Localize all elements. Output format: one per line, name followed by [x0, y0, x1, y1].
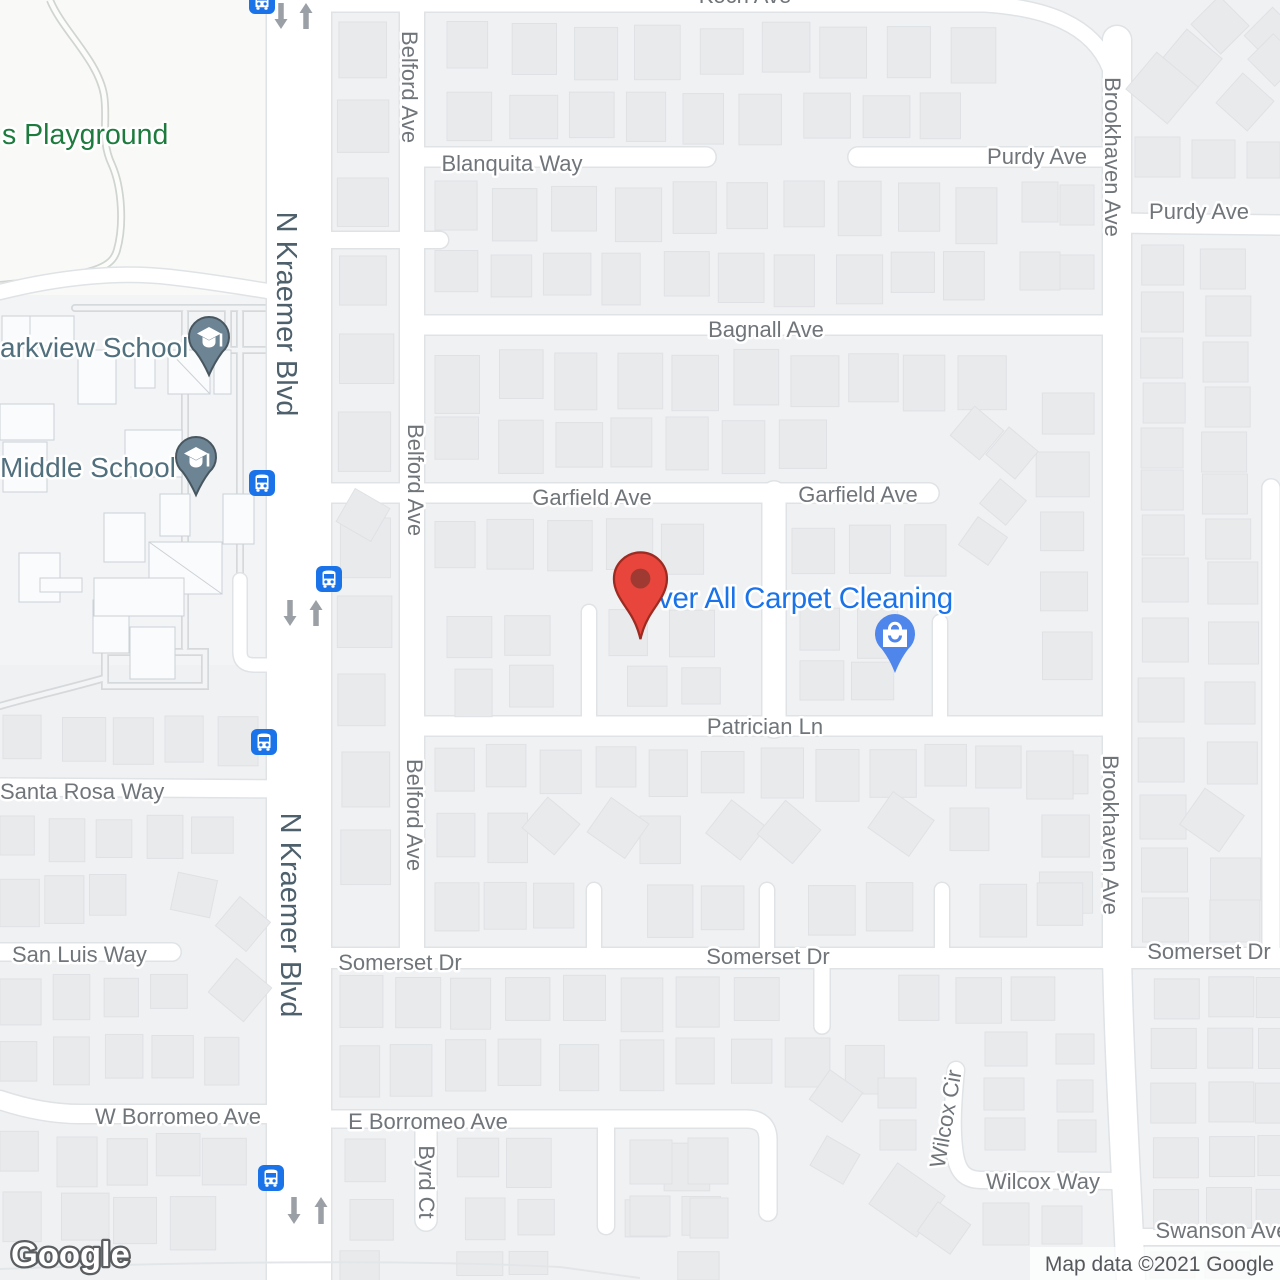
svg-text:Patrician Ln: Patrician Ln	[707, 714, 823, 739]
svg-text:ver All Carpet Cleaning: ver All Carpet Cleaning	[658, 582, 953, 615]
svg-text:Wilcox Way: Wilcox Way	[986, 1169, 1100, 1194]
svg-text:San Luis Way: San Luis Way	[12, 942, 147, 967]
svg-text:Koch Ave: Koch Ave	[699, 0, 792, 8]
svg-text:Byrd Ct: Byrd Ct	[414, 1145, 439, 1218]
svg-text:Somerset Dr: Somerset Dr	[1147, 939, 1270, 964]
svg-text:W Borromeo Ave: W Borromeo Ave	[95, 1104, 261, 1129]
svg-text:s Playground: s Playground	[2, 119, 168, 151]
svg-text:Brookhaven Ave: Brookhaven Ave	[1100, 77, 1125, 237]
svg-text:Google: Google	[11, 1236, 130, 1274]
svg-text:Brookhaven Ave: Brookhaven Ave	[1098, 755, 1123, 915]
svg-text:N Kraemer Blvd: N Kraemer Blvd	[274, 813, 306, 1018]
svg-text:N Kraemer Blvd: N Kraemer Blvd	[270, 212, 302, 417]
svg-text:Belford Ave: Belford Ave	[403, 424, 428, 536]
svg-text:Bagnall Ave: Bagnall Ave	[708, 317, 824, 342]
svg-text:E Borromeo Ave: E Borromeo Ave	[348, 1109, 508, 1134]
svg-text:Purdy Ave: Purdy Ave	[987, 144, 1087, 169]
svg-text:Swanson Ave: Swanson Ave	[1156, 1218, 1280, 1243]
svg-text:Blanquita Way: Blanquita Way	[441, 151, 582, 176]
svg-text:Belford Ave: Belford Ave	[397, 31, 422, 143]
svg-text:Belford Ave: Belford Ave	[402, 759, 427, 871]
svg-text:arkview School: arkview School	[0, 332, 188, 363]
svg-text:Map data ©2021 Google: Map data ©2021 Google	[1045, 1253, 1274, 1276]
svg-text:Somerset Dr: Somerset Dr	[338, 950, 461, 975]
svg-text:Garfield Ave: Garfield Ave	[532, 485, 651, 510]
svg-text:Middle School: Middle School	[0, 452, 176, 483]
svg-text:Santa Rosa Way: Santa Rosa Way	[0, 779, 164, 804]
svg-text:Garfield Ave: Garfield Ave	[798, 482, 917, 507]
svg-text:Purdy Ave: Purdy Ave	[1149, 199, 1249, 224]
svg-text:Somerset Dr: Somerset Dr	[706, 944, 829, 969]
